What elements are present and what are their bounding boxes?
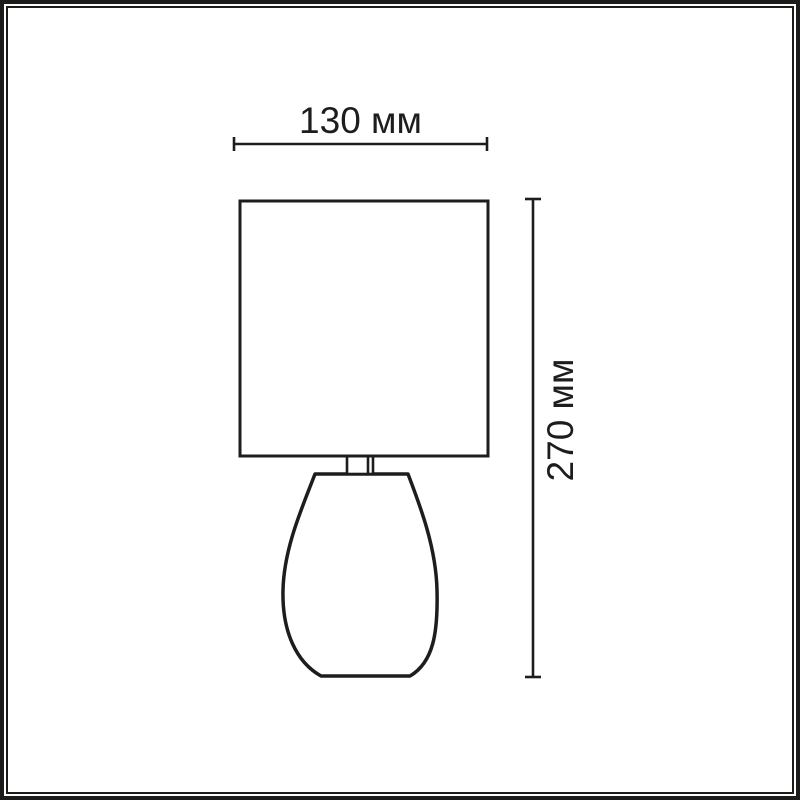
lamp-base-outline	[283, 474, 437, 676]
diagram-canvas: 130 мм 270 мм	[0, 0, 800, 800]
lamp-neck	[347, 456, 373, 474]
height-dimension-line	[525, 199, 541, 677]
width-dimension-label: 130 мм	[234, 102, 487, 140]
lampshade-outline	[240, 201, 488, 456]
height-dimension-label: 270 мм	[542, 344, 580, 496]
